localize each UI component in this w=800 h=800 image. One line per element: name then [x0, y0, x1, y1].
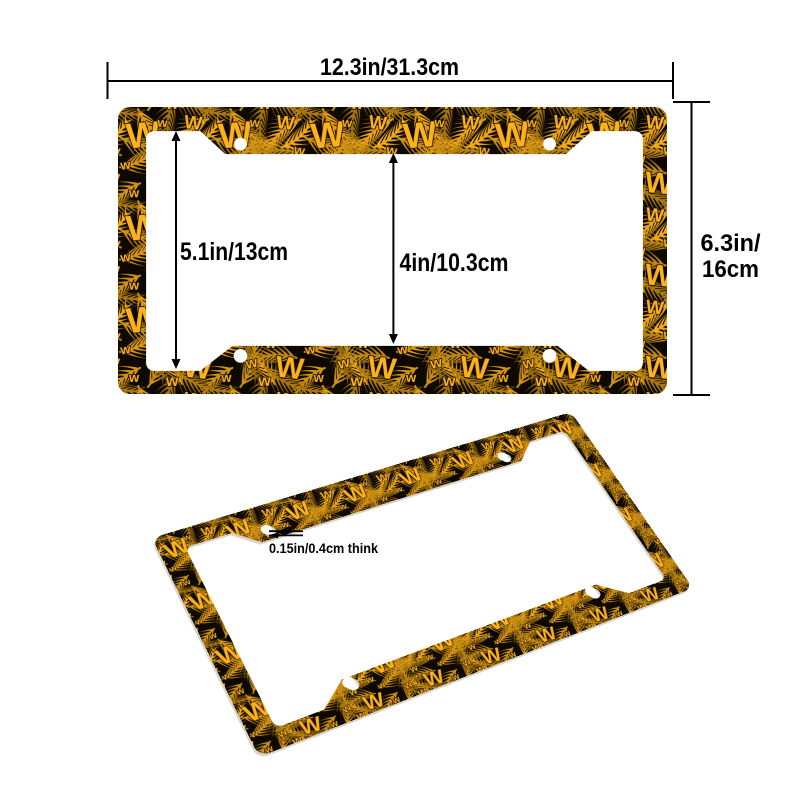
- svg-text:16cm: 16cm: [702, 256, 759, 283]
- svg-text:5.1in/13cm: 5.1in/13cm: [180, 238, 288, 266]
- svg-text:4in/10.3cm: 4in/10.3cm: [400, 249, 509, 277]
- svg-text:6.3in/: 6.3in/: [701, 230, 761, 257]
- svg-text:12.3in/31.3cm: 12.3in/31.3cm: [320, 54, 459, 81]
- svg-text:0.15in/0.4cm think: 0.15in/0.4cm think: [269, 540, 378, 556]
